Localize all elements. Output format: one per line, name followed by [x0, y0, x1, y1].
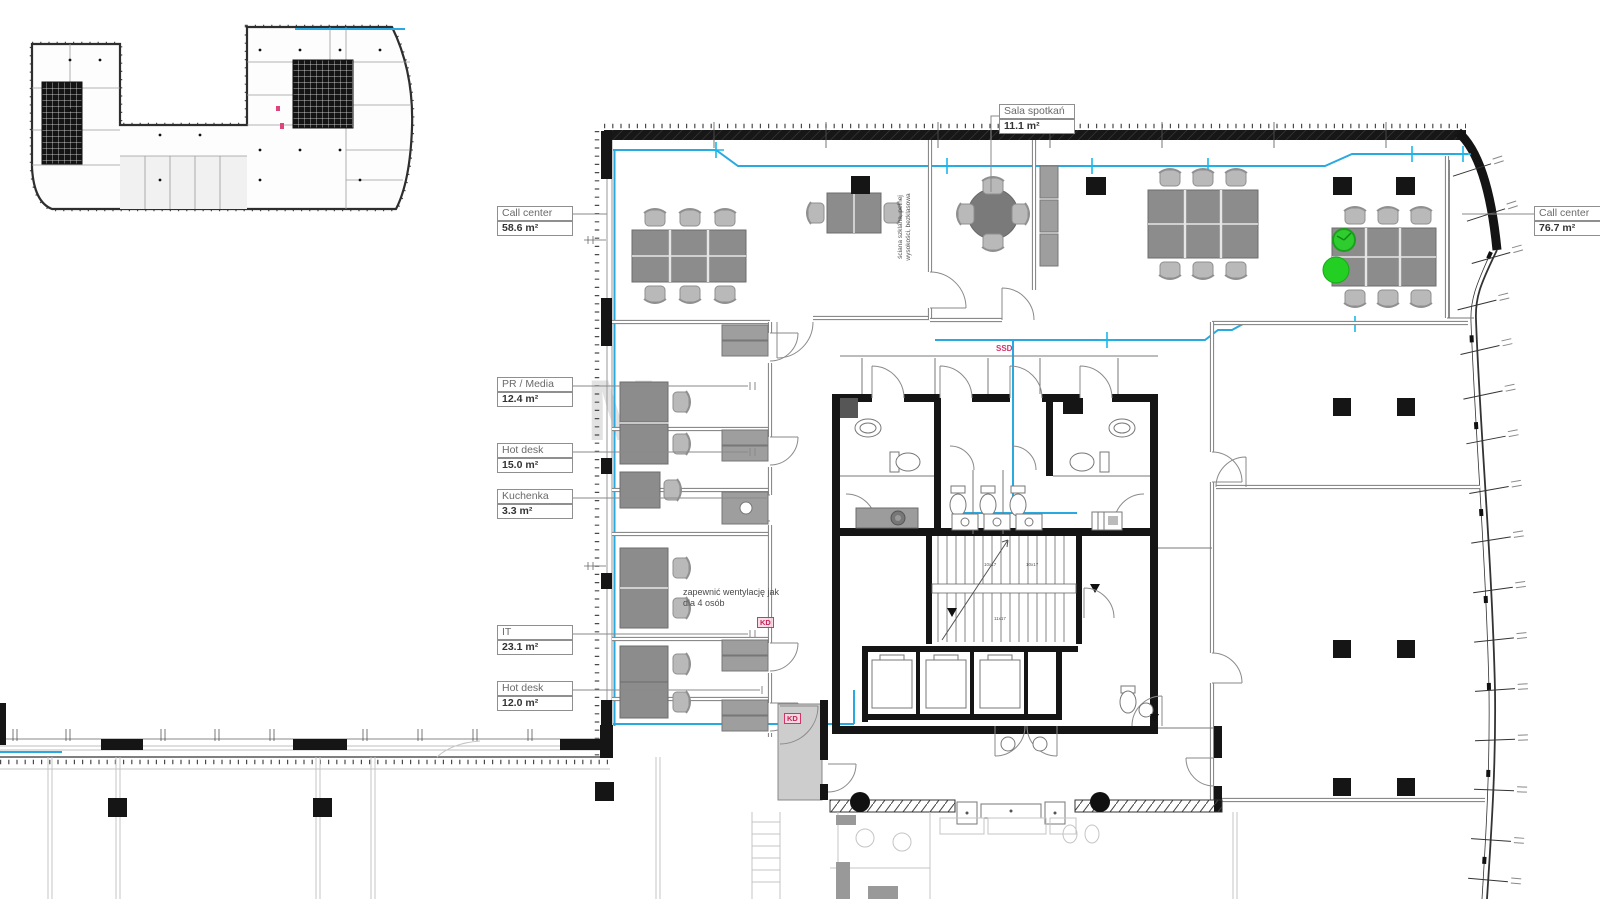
column — [851, 176, 870, 194]
round-table — [968, 189, 1018, 239]
room-label-pr-media: PR / Media 12.4 m² — [497, 377, 573, 407]
lobby-right-door — [1186, 758, 1214, 786]
ventilation-note: zapewnić wentylację jak dla 4 osób — [683, 587, 779, 609]
office-desks — [620, 382, 690, 718]
kd-marker: KD — [784, 713, 801, 724]
column — [313, 798, 332, 817]
kitchen-sink — [740, 502, 752, 514]
column — [595, 782, 614, 801]
bottom-left-facade — [0, 703, 660, 899]
room-area: 12.4 m² — [497, 392, 573, 407]
lobby-bottom-wall — [830, 800, 1222, 824]
call-center-right-area — [1148, 156, 1485, 899]
room-area: 3.3 m² — [497, 504, 573, 519]
lobby-left-door — [828, 764, 856, 792]
ghost-fixture — [836, 815, 856, 825]
room-area: 23.1 m² — [497, 640, 573, 655]
room-name: Hot desk — [497, 443, 573, 458]
ghost-fixture — [868, 886, 898, 899]
room-name: Call center — [497, 206, 573, 221]
room-label-call-center-right: Call center 76.7 m² — [1534, 206, 1600, 236]
stair-landing — [932, 584, 1076, 593]
elevators — [862, 646, 1078, 722]
column — [1086, 177, 1106, 195]
room-area: 76.7 m² — [1534, 221, 1600, 236]
left-rooms — [612, 322, 798, 737]
corridor-top-partition — [777, 318, 930, 358]
floor-plan-canvas: M .w{stroke:#8a8a8a;stroke-width:4.2;fil… — [0, 0, 1600, 899]
core-side-door — [1084, 588, 1114, 618]
left-facade — [584, 131, 612, 758]
round-column — [1090, 792, 1110, 812]
column — [108, 798, 127, 817]
core-stairs: 10x17 10x17 11x17 — [832, 536, 1158, 734]
toilet-fixtures — [840, 419, 1150, 534]
desk-cluster — [632, 209, 746, 303]
ssd-marker: SSD — [996, 344, 1012, 353]
key-plan-core-right — [293, 60, 353, 128]
ghost-fixture — [836, 862, 850, 899]
room-name: Kuchenka — [497, 489, 573, 504]
room-label-it: IT 23.1 m² — [497, 625, 573, 655]
room-name: IT — [497, 625, 573, 640]
level-marker — [947, 608, 957, 617]
room-label-sala-spotkan: Sala spotkań 11.1 m² — [999, 104, 1075, 134]
glass-wall-note: ściana szklana, pełnej wysokości, bezkla… — [897, 179, 915, 275]
stair-flight-label: 10x17 — [984, 562, 997, 567]
key-plan-marker-red — [276, 106, 280, 111]
room-label-hot-desk-12: Hot desk 12.0 m² — [497, 681, 573, 711]
stair-flight-label: 10x17 — [1026, 562, 1039, 567]
room-name: Call center — [1534, 206, 1600, 221]
key-plan-core-left — [42, 82, 82, 164]
green-seat-marker — [1323, 257, 1349, 283]
room-label-call-center-left: Call center 58.6 m² — [497, 206, 573, 236]
floor-plan-drawing: .w{stroke:#8a8a8a;stroke-width:4.2;fill:… — [0, 0, 1600, 899]
kd-marker: KD — [757, 617, 774, 628]
exterior-ghost-below — [752, 812, 1099, 899]
conference-cluster — [1148, 169, 1258, 279]
room-name: Sala spotkań — [999, 104, 1075, 119]
room-name: Hot desk — [497, 681, 573, 696]
room-label-kuchenka: Kuchenka 3.3 m² — [497, 489, 573, 519]
room-area: 11.1 m² — [999, 119, 1075, 134]
key-plan-overview — [32, 27, 412, 209]
room-area: 15.0 m² — [497, 458, 573, 473]
room-area: 58.6 m² — [497, 221, 573, 236]
stair-flight-label: 11x17 — [994, 616, 1006, 621]
two-seat-table — [807, 193, 901, 233]
room-name: PR / Media — [497, 377, 573, 392]
round-column — [850, 792, 870, 812]
room-area: 12.0 m² — [497, 696, 573, 711]
room-label-hot-desk-15: Hot desk 15.0 m² — [497, 443, 573, 473]
lower-ghost-lines — [0, 741, 660, 899]
cabinets — [1040, 166, 1058, 266]
desk-cluster-highlighted — [1323, 207, 1436, 307]
top-right-wall-fin — [1458, 132, 1497, 250]
